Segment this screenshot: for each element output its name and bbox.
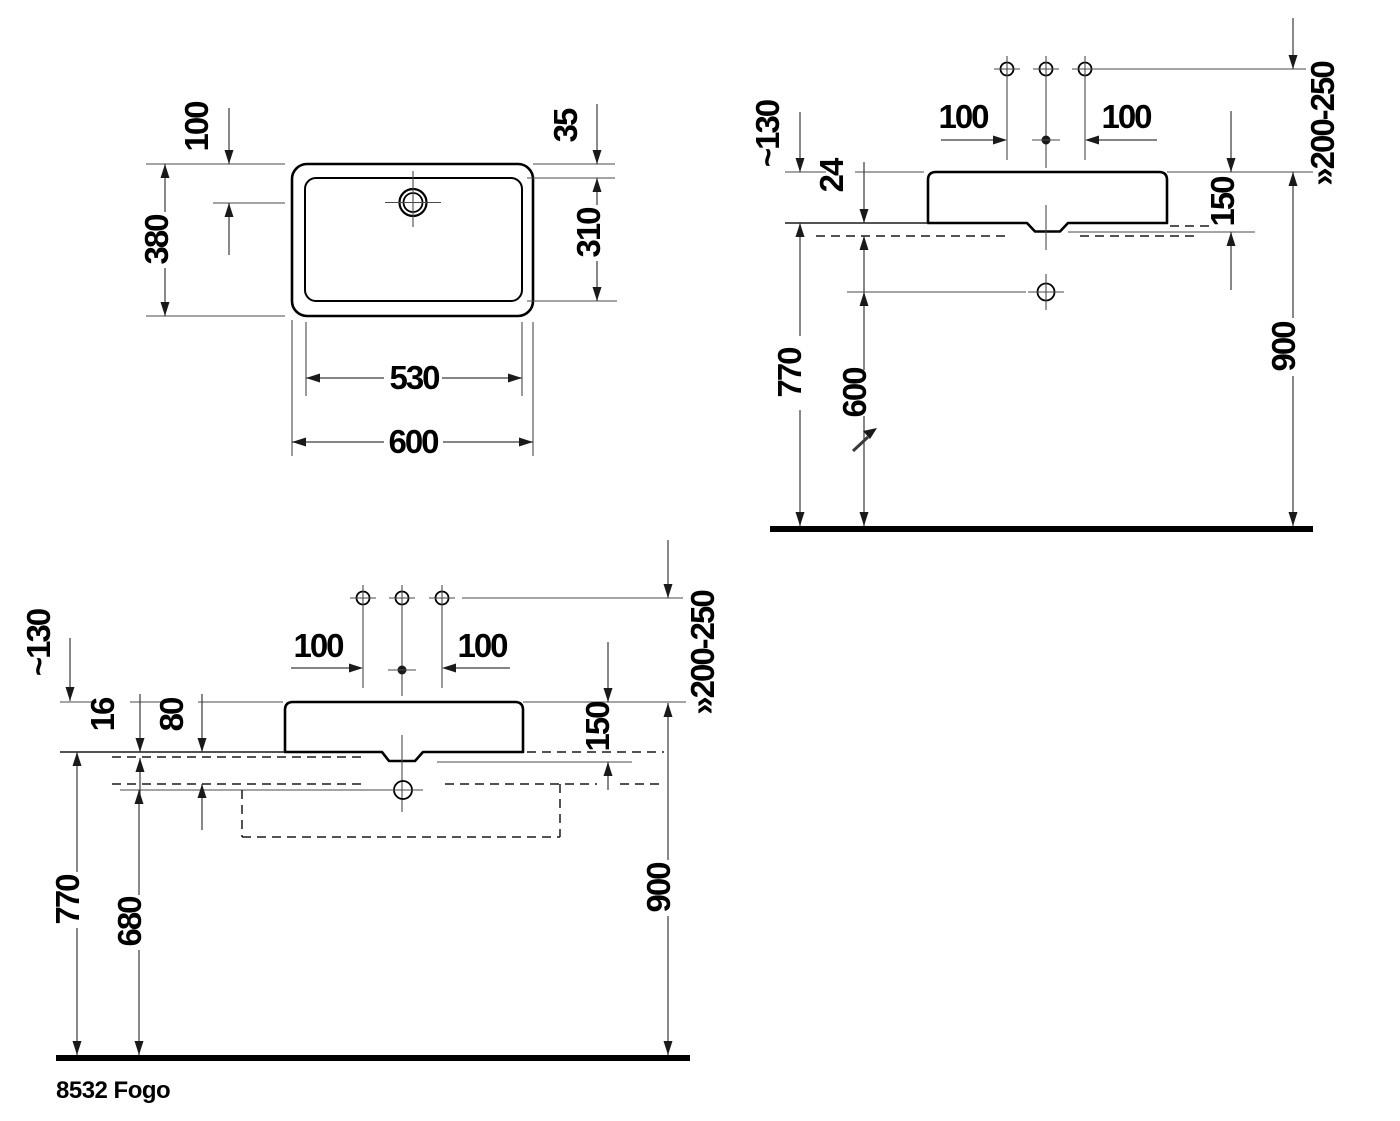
dim-100-left-label-front: 100 [293,627,343,664]
dim-770-label-front: 770 [49,875,86,925]
dim-80-label: 80 [153,698,190,731]
dim-100-label-plan: 100 [178,102,215,152]
dim-310-label: 310 [570,208,607,258]
dim-mirror-label-side: »200-250 [1304,62,1341,186]
dim-150-label-side: 150 [1204,177,1241,227]
drain-side [847,274,1064,310]
dim-100-right-label-side: 100 [1101,98,1151,135]
dim-600-label: 600 [388,423,438,460]
front-view: 100 100 ~130 16 80 150 770 680 900 »200-… [20,540,721,1058]
dimension-lines-side [785,18,1313,526]
dimension-lines-front [60,540,686,1055]
basin-outline-front [285,702,523,812]
drawing-sheet: 100 380 35 310 530 600 [0,0,1400,1121]
dimension-lines-plan [146,104,617,456]
technical-drawing-svg: 100 380 35 310 530 600 [0,0,1400,1121]
dim-900-label-front: 900 [640,863,677,913]
dim-680-label: 680 [111,897,148,947]
counter-lines-side [785,223,1255,236]
console-frame-dashed [242,784,560,837]
basin-outline-side [928,172,1167,250]
dim-130-label-front: ~130 [20,609,57,676]
model-number-label: 8532 Fogo [56,1077,170,1104]
console-lines-front [60,752,664,837]
dim-100-left-label-side: 100 [938,98,988,135]
dim-100-right-label-front: 100 [457,627,507,664]
dim-530-label: 530 [389,359,439,396]
reference-arrow-side [863,428,877,439]
dim-600-label-side: 600 [836,368,873,418]
dim-380-label: 380 [138,215,175,265]
dim-900-label-side: 900 [1265,322,1302,372]
dim-770-label-side: 770 [771,348,808,398]
faucet-crosshair [385,171,441,227]
dim-mirror-label-front: »200-250 [684,591,721,715]
dim-24-label: 24 [813,157,850,192]
side-view: 100 100 ~130 24 150 770 600 900 »200-250 [749,18,1341,529]
dim-130-label-side: ~130 [749,100,786,167]
dim-150-label-front: 150 [579,702,616,752]
plan-view: 100 380 35 310 530 600 [138,102,617,460]
dim-16-label: 16 [84,697,121,731]
fitting-holes-front [350,585,683,696]
dim-35-label: 35 [547,108,584,142]
drain-front [383,781,423,799]
basin-outline-plan [292,164,533,316]
